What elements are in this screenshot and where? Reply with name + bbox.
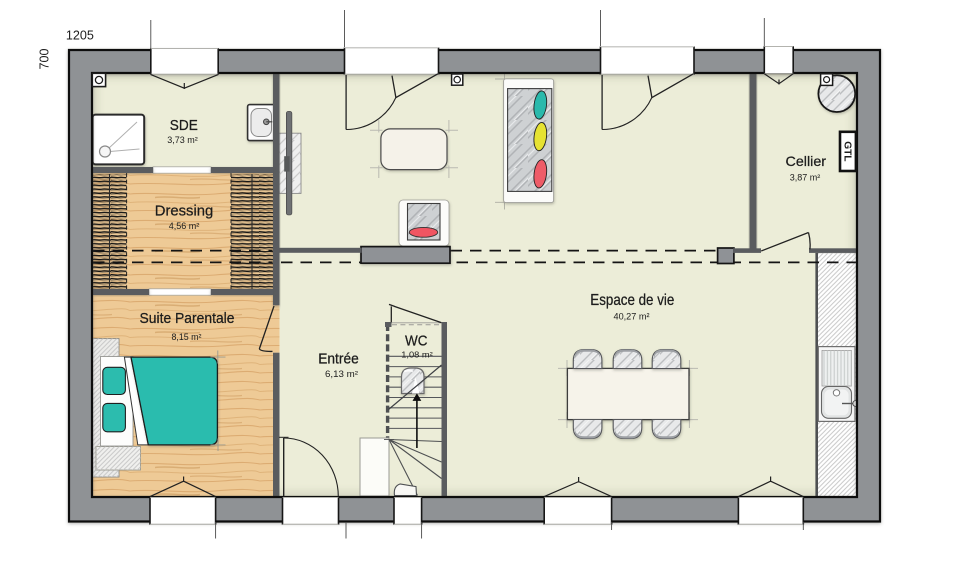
svg-text:700: 700 [38, 48, 52, 69]
svg-text:Espace de vie: Espace de vie [590, 292, 674, 309]
svg-text:1205: 1205 [66, 29, 94, 43]
svg-text:Cellier: Cellier [786, 154, 827, 169]
svg-text:6,13 m²: 6,13 m² [325, 369, 358, 379]
svg-text:3,87 m²: 3,87 m² [790, 173, 821, 183]
svg-text:40,27 m²: 40,27 m² [614, 311, 650, 321]
svg-text:Entrée: Entrée [318, 351, 359, 367]
svg-text:1,08 m²: 1,08 m² [401, 351, 433, 360]
svg-text:GTL: GTL [842, 141, 853, 161]
svg-text:3,73 m²: 3,73 m² [167, 135, 198, 145]
svg-text:WC: WC [405, 333, 428, 350]
svg-text:Suite Parentale: Suite Parentale [140, 311, 235, 327]
svg-text:SDE: SDE [170, 118, 198, 134]
svg-text:4,56 m²: 4,56 m² [169, 221, 200, 231]
svg-text:8,15 m²: 8,15 m² [172, 332, 202, 342]
svg-text:Dressing: Dressing [155, 203, 214, 220]
